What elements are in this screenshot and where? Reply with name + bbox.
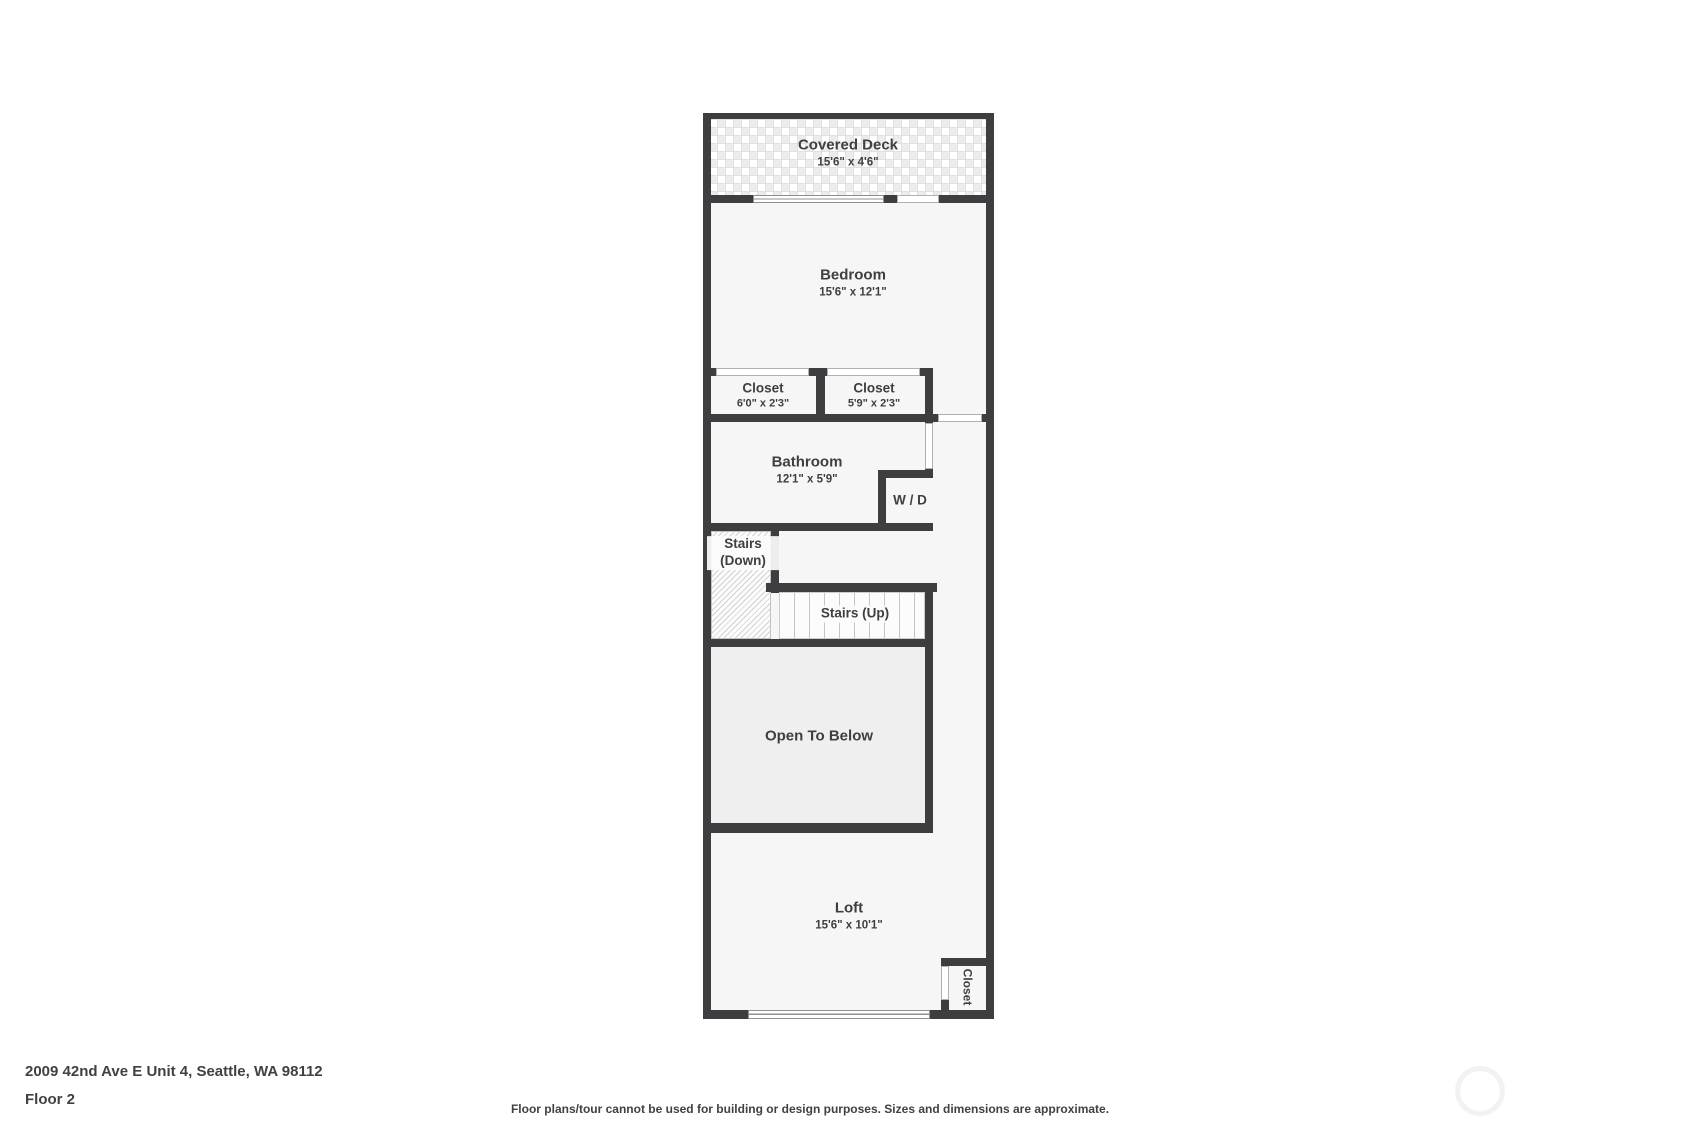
closet-right-door-opening xyxy=(827,368,920,376)
closet-left-door-opening xyxy=(716,368,809,376)
stairs-down-label: Stairs (Down) xyxy=(707,536,779,570)
loft-closet-door-opening xyxy=(941,966,949,1000)
room-name: Closet xyxy=(737,381,789,398)
closet-right-label: Closet 5'9" x 2'3" xyxy=(848,381,900,412)
room-name: Bedroom xyxy=(819,266,887,285)
room-dims: 15'6" x 4'6" xyxy=(798,155,898,169)
room-name: Stairs (Up) xyxy=(818,606,892,623)
room-dims: 15'6" x 12'1" xyxy=(819,285,887,299)
room-name: Closet xyxy=(848,381,900,398)
washer-dryer-label: W / D xyxy=(893,493,927,510)
loft-window xyxy=(748,1010,930,1019)
open-to-below-label: Open To Below xyxy=(765,728,873,747)
room-name: Open To Below xyxy=(765,728,873,747)
room-name: Stairs (Down) xyxy=(707,536,779,570)
room-name: Closet xyxy=(960,969,975,1006)
disclaimer-text: Floor plans/tour cannot be used for buil… xyxy=(0,1102,1620,1116)
bathroom-door-opening xyxy=(925,423,933,469)
bedroom-label: Bedroom 15'6" x 12'1" xyxy=(819,266,887,299)
wall-bathroom-bottom xyxy=(703,523,933,531)
wall-wd-left xyxy=(878,470,886,531)
outer-wall-right xyxy=(986,113,994,1019)
covered-deck-label: Covered Deck 15'6" x 4'6" xyxy=(798,136,898,169)
room-name: W / D xyxy=(893,493,927,510)
closet-left-label: Closet 6'0" x 2'3" xyxy=(737,381,789,412)
wall-loft-closet-left xyxy=(941,1000,949,1010)
page: Covered Deck 15'6" x 4'6" Bedroom 15'6" … xyxy=(0,0,1697,1131)
wall-loft-closet-top xyxy=(941,958,994,966)
room-dims: 5'9" x 2'3" xyxy=(848,398,900,412)
room-dims: 6'0" x 2'3" xyxy=(737,398,789,412)
loft-label: Loft 15'6" x 10'1" xyxy=(815,899,883,932)
address-text: 2009 42nd Ave E Unit 4, Seattle, WA 9811… xyxy=(25,1063,323,1080)
bedroom-deck-window xyxy=(753,195,884,203)
room-name: Covered Deck xyxy=(798,136,898,155)
wall-stairs-up-top xyxy=(766,583,937,592)
stairs-up-label: Stairs (Up) xyxy=(818,606,892,623)
wall-wd-top xyxy=(878,470,933,478)
room-name: Loft xyxy=(815,899,883,918)
room-name: Bathroom xyxy=(772,453,843,472)
wall-otb-top xyxy=(703,639,933,647)
deck-door-opening xyxy=(897,195,939,203)
room-dims: 15'6" x 10'1" xyxy=(815,918,883,932)
room-dims: 12'1" x 5'9" xyxy=(772,472,843,486)
wall-stairs-otb-right xyxy=(925,583,933,831)
wall-otb-bottom xyxy=(703,823,933,833)
loft-closet-label: Closet xyxy=(960,969,975,1006)
watermark-logo-icon xyxy=(1455,1066,1505,1116)
floor-plan: Covered Deck 15'6" x 4'6" Bedroom 15'6" … xyxy=(703,113,994,1019)
hall-door-opening xyxy=(938,414,982,422)
outer-wall-top xyxy=(703,113,994,119)
bathroom-label: Bathroom 12'1" x 5'9" xyxy=(772,453,843,486)
